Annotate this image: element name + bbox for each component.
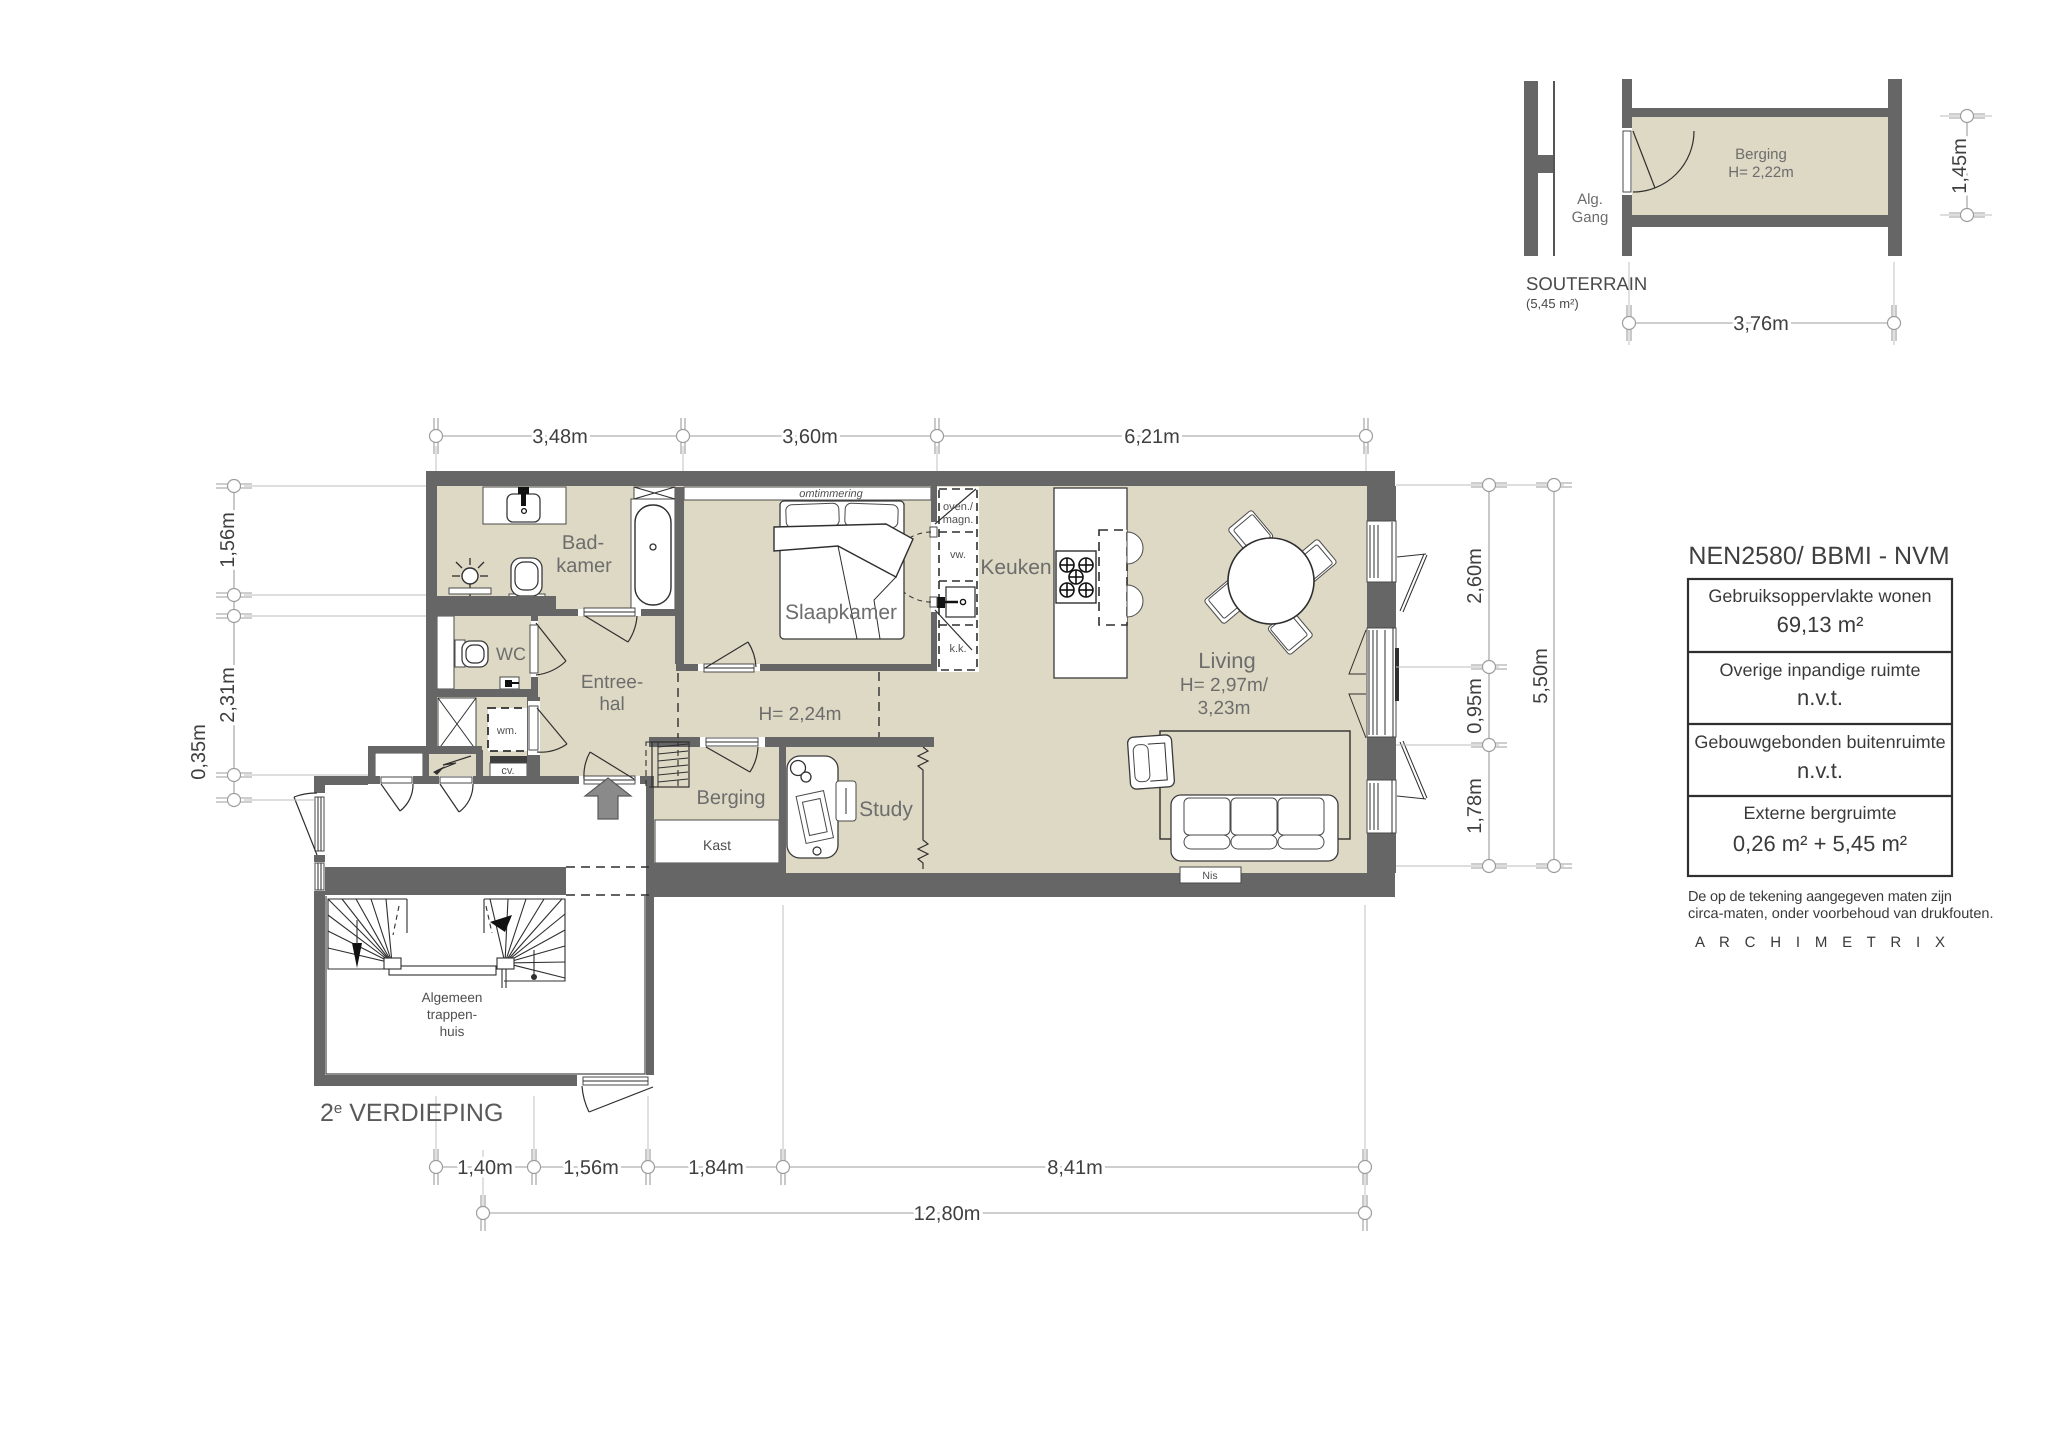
svg-text:Gebouwgebonden buitenruimte: Gebouwgebonden buitenruimte bbox=[1694, 732, 1945, 752]
svg-text:H= 2,24m: H= 2,24m bbox=[759, 704, 842, 725]
svg-text:hal: hal bbox=[599, 694, 624, 715]
svg-text:n.v.t.: n.v.t. bbox=[1797, 758, 1843, 783]
svg-text:oven./: oven./ bbox=[943, 501, 974, 513]
svg-text:3,23m: 3,23m bbox=[1198, 698, 1251, 719]
svg-text:magn.: magn. bbox=[943, 514, 974, 526]
svg-text:cv.: cv. bbox=[501, 765, 514, 777]
svg-text:2e VERDIEPING: 2e VERDIEPING bbox=[320, 1099, 503, 1127]
svg-text:Slaapkamer: Slaapkamer bbox=[785, 601, 897, 624]
svg-text:trappen-: trappen- bbox=[427, 1007, 477, 1022]
svg-text:0,95m: 0,95m bbox=[1464, 678, 1486, 734]
svg-text:1,56m: 1,56m bbox=[217, 512, 239, 568]
svg-text:Alg.: Alg. bbox=[1577, 191, 1603, 208]
svg-text:NEN2580/ BBMI - NVM: NEN2580/ BBMI - NVM bbox=[1688, 542, 1949, 570]
svg-text:1,78m: 1,78m bbox=[1464, 778, 1486, 834]
svg-text:Gang: Gang bbox=[1572, 209, 1609, 226]
svg-text:5,50m: 5,50m bbox=[1530, 648, 1552, 704]
svg-text:Berging: Berging bbox=[697, 787, 766, 809]
svg-text:2,60m: 2,60m bbox=[1464, 548, 1486, 604]
svg-text:6,21m: 6,21m bbox=[1124, 426, 1180, 448]
svg-text:1,56m: 1,56m bbox=[563, 1157, 619, 1179]
svg-text:k.k.: k.k. bbox=[949, 643, 966, 655]
svg-text:Berging: Berging bbox=[1735, 146, 1787, 163]
svg-text:Overige inpandige ruimte: Overige inpandige ruimte bbox=[1719, 660, 1920, 680]
svg-text:0,26 m² + 5,45 m²: 0,26 m² + 5,45 m² bbox=[1733, 831, 1907, 856]
svg-text:huis: huis bbox=[440, 1024, 465, 1039]
svg-text:omtimmering: omtimmering bbox=[799, 488, 863, 500]
svg-text:Study: Study bbox=[859, 798, 913, 821]
svg-text:Gebruiksoppervlakte wonen: Gebruiksoppervlakte wonen bbox=[1708, 586, 1931, 606]
svg-text:3,48m: 3,48m bbox=[532, 426, 588, 448]
svg-text:Algemeen: Algemeen bbox=[422, 990, 483, 1005]
svg-text:n.v.t.: n.v.t. bbox=[1797, 685, 1843, 710]
svg-text:2,31m: 2,31m bbox=[217, 667, 239, 723]
svg-text:wm.: wm. bbox=[496, 725, 517, 737]
svg-text:circa-maten, onder voorbehoud: circa-maten, onder voorbehoud van drukfo… bbox=[1688, 906, 1994, 922]
svg-text:Kast: Kast bbox=[703, 837, 731, 853]
svg-text:Living: Living bbox=[1198, 648, 1255, 673]
svg-text:De op de tekening aangegeven m: De op de tekening aangegeven maten zijn bbox=[1688, 889, 1952, 905]
svg-text:1,45m: 1,45m bbox=[1949, 138, 1971, 194]
svg-text:0,35m: 0,35m bbox=[188, 724, 210, 780]
svg-text:Nis: Nis bbox=[1202, 870, 1217, 882]
svg-text:SOUTERRAIN: SOUTERRAIN bbox=[1526, 273, 1647, 294]
svg-text:Entree-: Entree- bbox=[581, 672, 643, 693]
svg-text:3,76m: 3,76m bbox=[1733, 313, 1789, 335]
svg-text:12,80m: 12,80m bbox=[914, 1203, 981, 1225]
svg-text:H= 2,22m: H= 2,22m bbox=[1728, 164, 1793, 181]
svg-text:WC: WC bbox=[496, 644, 526, 664]
svg-text:vw.: vw. bbox=[950, 549, 966, 561]
svg-text:Bad-: Bad- bbox=[562, 532, 604, 554]
svg-text:8,41m: 8,41m bbox=[1047, 1157, 1103, 1179]
svg-text:H= 2,97m/: H= 2,97m/ bbox=[1180, 675, 1269, 696]
svg-text:3,60m: 3,60m bbox=[782, 426, 838, 448]
svg-text:1,40m: 1,40m bbox=[457, 1157, 513, 1179]
svg-text:(5,45 m²): (5,45 m²) bbox=[1526, 296, 1579, 311]
svg-text:Keuken: Keuken bbox=[980, 556, 1051, 579]
svg-text:kamer: kamer bbox=[556, 555, 612, 577]
svg-text:1,84m: 1,84m bbox=[688, 1157, 744, 1179]
svg-text:Externe bergruimte: Externe bergruimte bbox=[1743, 803, 1896, 823]
svg-text:69,13 m²: 69,13 m² bbox=[1777, 612, 1864, 637]
